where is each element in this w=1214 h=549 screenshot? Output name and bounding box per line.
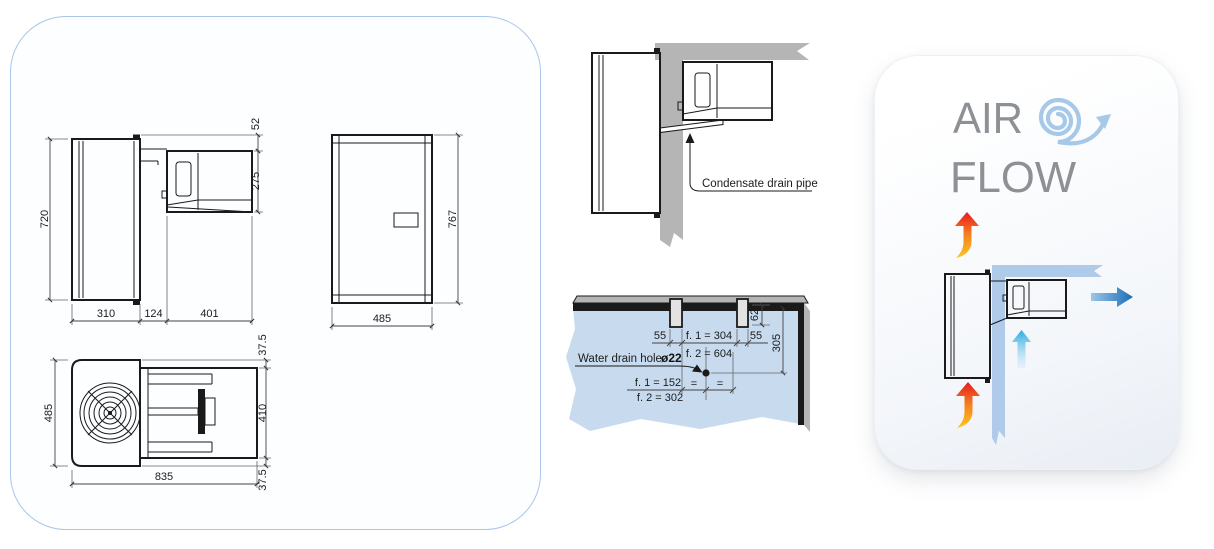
dim-front-height: 767 [447,210,459,228]
dim-slot-width-right: 55 [750,330,762,342]
dim-slot-width-left: 55 [654,330,666,342]
top-view-drawing: 485 835 37.5 410 37.5 [43,334,271,490]
orthographic-drawings: 720 52 275 310 124 401 485 767 [10,16,539,529]
condensate-drain-label: Condensate drain pipe [702,178,818,190]
dim-overall-height: 720 [39,210,51,228]
wall-right-edge [798,303,804,425]
mounting-slot-right [737,299,748,327]
dim-between-slots-f2: f. 2 = 604 [686,348,732,360]
dim-condenser-top-offset: 52 [250,118,262,130]
dim-front-width: 485 [373,313,391,325]
water-drain-hole-dot [702,369,709,376]
wall-shape [992,265,1103,445]
water-drain-hole-label: Water drain hole [578,353,662,365]
cold-air-arrow-icon [1012,330,1031,368]
airflow-diagram: AIR FLOW [874,55,1177,469]
pointer-arrow-icon [686,133,695,143]
airflow-title-line2: FLOW [950,153,1076,202]
hot-air-arrow-bottom-icon [956,382,980,428]
dim-hole-offset-f1: f. 1 = 152 [635,377,681,389]
condensate-diagram: Condensate drain pipe [592,43,818,247]
installation-diagrams: Condensate drain pipe 55 f. 1 = 304 55 f… [560,30,830,450]
front-view-drawing: 485 767 [332,135,463,330]
datasheet-canvas: 720 52 275 310 124 401 485 767 [0,0,1214,549]
wall-top-bevel [573,296,808,303]
wall-surface-shape [566,308,800,431]
side-view-drawing: 720 52 275 310 124 401 [39,118,263,325]
wall-right-bevel [804,303,810,432]
equal-mark-right: = [717,378,723,390]
dim-condenser-height: 275 [250,172,262,190]
ceiling-wall-shape [655,43,810,60]
dim-slot-depth: 62 [749,309,761,321]
dim-condenser-width: 410 [257,404,269,422]
dim-top-margin: 37.5 [257,334,269,355]
vertical-wall-shape [660,60,683,247]
fan-grille-icon [80,383,140,443]
airflow-spiral-icon [1041,100,1111,143]
dim-overall-length: 835 [155,471,173,483]
dim-interior-depth: 310 [97,308,115,320]
dim-wall-thickness: 124 [144,308,162,320]
dim-top-depth: 485 [43,404,55,422]
dim-hole-distance: 305 [771,334,783,352]
water-drain-hole-diameter: ø22 [661,351,682,365]
dim-between-slots-f1: f. 1 = 304 [686,330,732,342]
air-out-arrow-icon [1091,287,1133,307]
wall-top-edge [573,303,804,311]
mounting-slot-left [670,299,682,327]
wall-cutout-diagram: 55 f. 1 = 304 55 f. 2 = 604 62 305 Water… [566,296,810,432]
airflow-title-line1: AIR [953,94,1023,143]
dim-exterior-depth: 401 [200,308,218,320]
dim-bottom-margin: 37.5 [257,469,269,490]
hot-air-arrow-top-icon [955,212,979,258]
unit-drawing [945,270,1066,384]
dim-hole-offset-f2: f. 2 = 302 [637,392,683,404]
equal-mark-left: = [691,378,697,390]
